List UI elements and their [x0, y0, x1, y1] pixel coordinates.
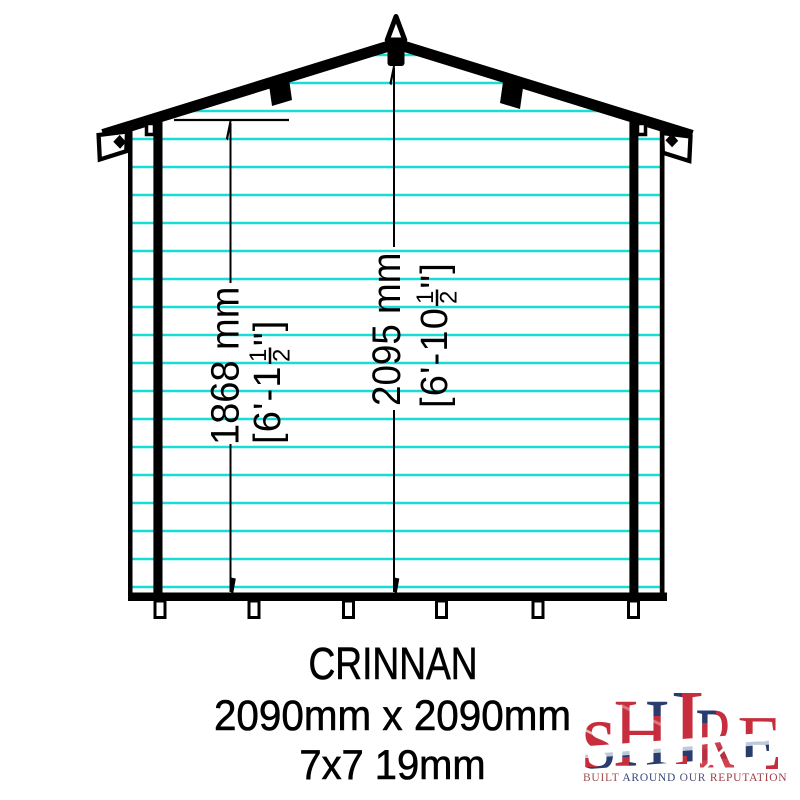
svg-text:[6'-1: [6'-1 [247, 365, 289, 444]
svg-text:[6'-10: [6'-10 [414, 307, 456, 408]
svg-text:"]: "] [414, 262, 456, 288]
svg-text:2: 2 [436, 291, 463, 304]
svg-text:"]: "] [247, 320, 289, 346]
svg-text:2095 mm: 2095 mm [365, 253, 410, 406]
svg-text:7x7 19mm: 7x7 19mm [299, 741, 485, 788]
svg-text:CRINNAN: CRINNAN [308, 639, 477, 689]
svg-text:2090mm x 2090mm: 2090mm x 2090mm [214, 691, 571, 739]
svg-text:BUILT AROUND OUR REPUTATION: BUILT AROUND OUR REPUTATION [583, 772, 787, 784]
svg-text:1868 mm: 1868 mm [204, 287, 248, 445]
svg-text:2: 2 [269, 349, 296, 362]
